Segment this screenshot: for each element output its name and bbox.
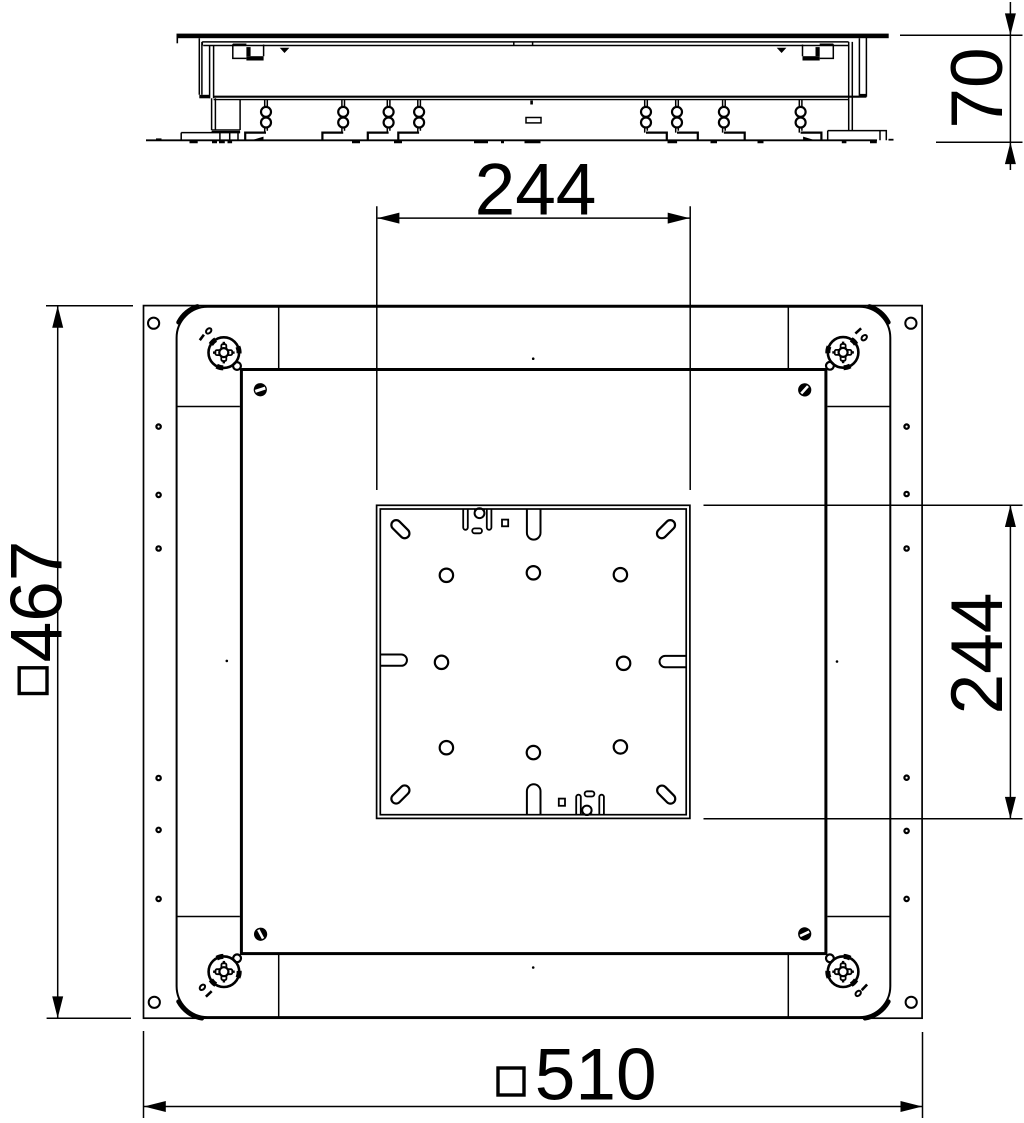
svg-text:70: 70	[937, 47, 1018, 128]
svg-text:510: 510	[535, 1035, 657, 1116]
svg-text:244: 244	[937, 593, 1018, 715]
svg-text:244: 244	[475, 150, 597, 231]
svg-text:467: 467	[0, 541, 78, 663]
